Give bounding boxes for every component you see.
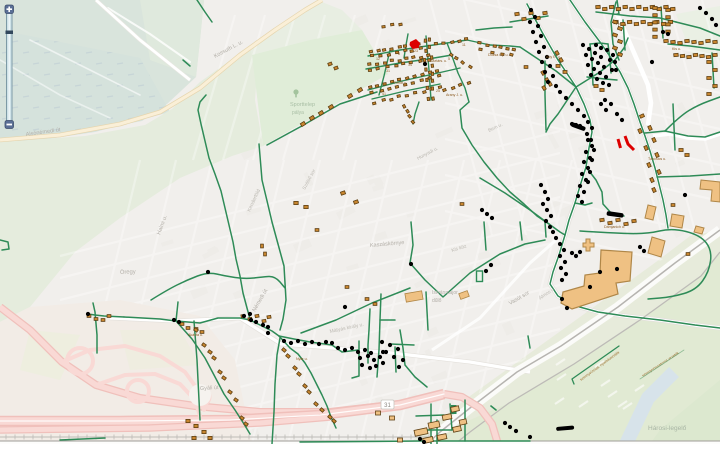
svg-text:Táncsics u.: Táncsics u. bbox=[648, 157, 666, 161]
svg-text:Gyáli út: Gyáli út bbox=[200, 385, 219, 392]
svg-text:Dózsa Gy. u.: Dózsa Gy. u. bbox=[488, 53, 509, 57]
svg-text:11: 11 bbox=[462, 43, 466, 47]
svg-text:Nyár u.: Nyár u. bbox=[296, 357, 308, 361]
svg-text:5: 5 bbox=[448, 57, 450, 61]
svg-text:31: 31 bbox=[384, 403, 391, 409]
svg-text:18: 18 bbox=[428, 75, 432, 79]
svg-text:31: 31 bbox=[386, 69, 390, 73]
svg-text:pálya: pálya bbox=[292, 110, 304, 116]
svg-text:23: 23 bbox=[414, 49, 418, 53]
svg-text:dűlő: dűlő bbox=[432, 298, 442, 304]
svg-text:14: 14 bbox=[408, 63, 412, 67]
svg-text:8: 8 bbox=[398, 52, 400, 56]
svg-text:Kis u.: Kis u. bbox=[672, 47, 681, 51]
svg-text:Akácfa u.: Akácfa u. bbox=[188, 333, 203, 337]
svg-text:Istvánmajor: Istvánmajor bbox=[432, 290, 458, 296]
svg-text:25: 25 bbox=[436, 89, 440, 93]
svg-text:Damjanich u.: Damjanich u. bbox=[604, 225, 625, 229]
svg-text:Öregy: Öregy bbox=[120, 268, 136, 276]
svg-text:Fő út: Fő út bbox=[618, 23, 626, 27]
svg-text:Sporttelep: Sporttelep bbox=[290, 102, 315, 108]
svg-text:41: 41 bbox=[382, 92, 386, 96]
svg-text:Ady E. u.: Ady E. u. bbox=[546, 55, 561, 59]
svg-text:12: 12 bbox=[376, 57, 380, 61]
svg-text:Hárosi-legelő: Hárosi-legelő bbox=[648, 425, 687, 432]
svg-text:Arany J. u.: Arany J. u. bbox=[446, 93, 463, 97]
svg-text:6: 6 bbox=[404, 83, 406, 87]
svg-text:7: 7 bbox=[432, 59, 434, 63]
